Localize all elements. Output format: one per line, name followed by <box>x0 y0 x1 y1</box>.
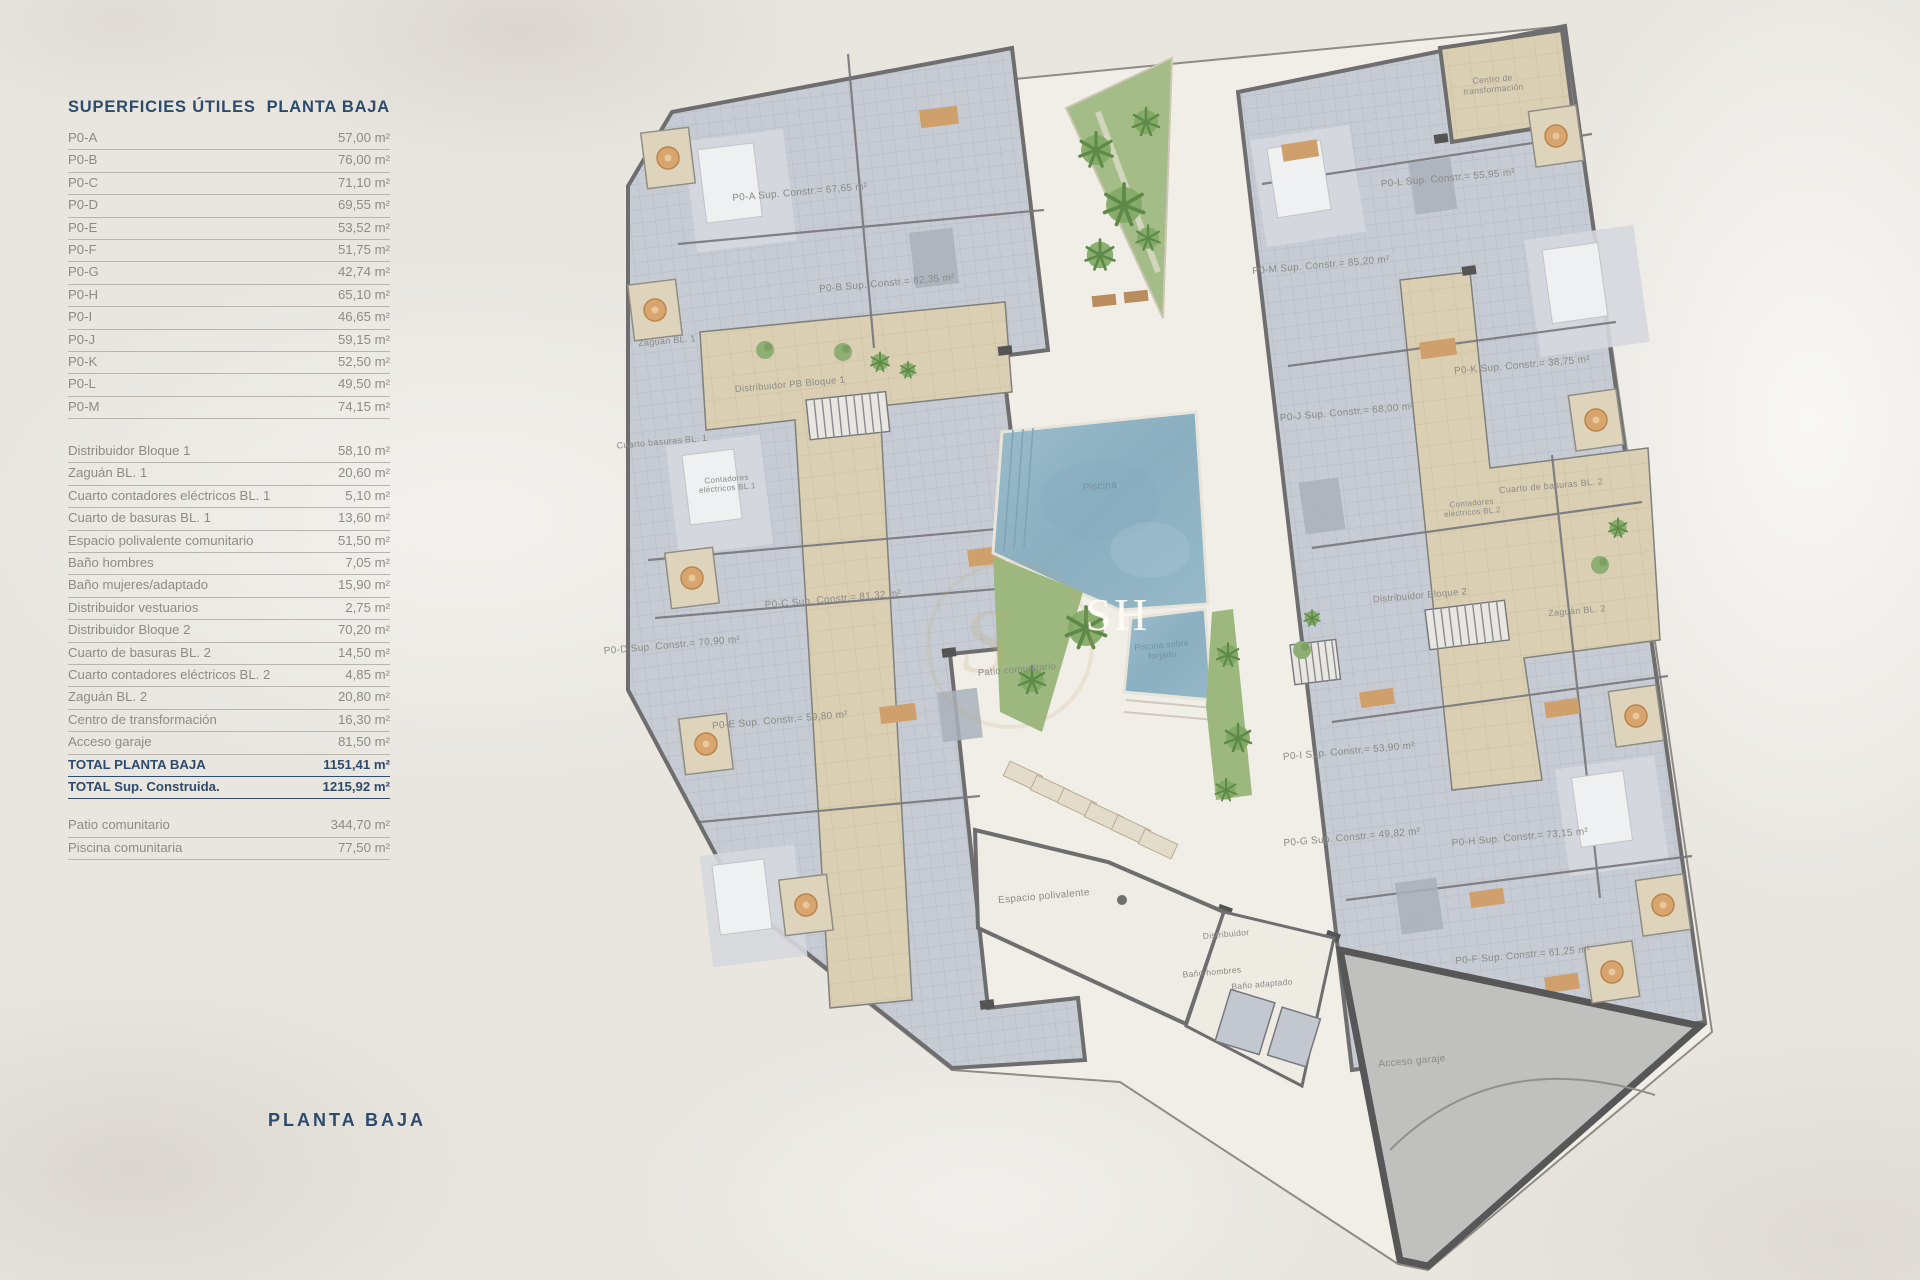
row-label: Cuarto contadores eléctricos BL. 1 <box>68 486 270 506</box>
outdoor-section: Patio comunitario 344,70 m² Piscina comu… <box>68 815 390 860</box>
table-row: P0-K 52,50 m² <box>68 352 390 374</box>
total-row: TOTAL PLANTA BAJA 1151,41 m² <box>68 755 390 777</box>
row-value: 20,60 m² <box>338 463 390 483</box>
row-value: 74,15 m² <box>338 397 390 417</box>
row-label: P0-I <box>68 307 92 327</box>
row-value: 53,52 m² <box>338 218 390 238</box>
row-value: 77,50 m² <box>338 838 390 858</box>
table-row: Cuarto de basuras BL. 2 14,50 m² <box>68 643 390 665</box>
page-title: PLANTA BAJA <box>268 1110 426 1131</box>
row-label: Piscina comunitaria <box>68 838 182 858</box>
table-row: Distribuidor Bloque 2 70,20 m² <box>68 620 390 642</box>
row-value: 69,55 m² <box>338 195 390 215</box>
apartments-section: P0-A 57,00 m² P0-B 76,00 m² P0-C 71,10 m… <box>68 128 390 419</box>
row-value: 14,50 m² <box>338 643 390 663</box>
row-value: 15,90 m² <box>338 575 390 595</box>
row-label: P0-H <box>68 285 98 305</box>
surface-table: SUPERFICIES ÚTILES PLANTA BAJA P0-A 57,0… <box>68 98 390 882</box>
table-row: P0-H 65,10 m² <box>68 285 390 307</box>
row-label: P0-C <box>68 173 98 193</box>
row-label: P0-F <box>68 240 97 260</box>
row-label: Zaguán BL. 1 <box>68 463 147 483</box>
row-value: 49,50 m² <box>338 374 390 394</box>
table-header: SUPERFICIES ÚTILES PLANTA BAJA <box>68 98 390 117</box>
row-label: Distribuidor Bloque 2 <box>68 620 190 640</box>
table-row: Cuarto de basuras BL. 1 13,60 m² <box>68 508 390 530</box>
row-label: P0-L <box>68 374 96 394</box>
table-row: Cuarto contadores eléctricos BL. 2 4,85 … <box>68 665 390 687</box>
table-row: Patio comunitario 344,70 m² <box>68 815 390 837</box>
row-label: P0-G <box>68 262 99 282</box>
row-label: Acceso garaje <box>68 732 152 752</box>
table-row: Baño mujeres/adaptado 15,90 m² <box>68 575 390 597</box>
row-value: 42,74 m² <box>338 262 390 282</box>
row-label: Baño hombres <box>68 553 154 573</box>
row-value: 81,50 m² <box>338 732 390 752</box>
table-row: P0-L 49,50 m² <box>68 374 390 396</box>
row-label: P0-D <box>68 195 98 215</box>
row-value: 20,80 m² <box>338 687 390 707</box>
table-row: Centro de transformación 16,30 m² <box>68 710 390 732</box>
table-row: P0-D 69,55 m² <box>68 195 390 217</box>
row-value: 58,10 m² <box>338 441 390 461</box>
row-value: 13,60 m² <box>338 508 390 528</box>
row-value: 70,20 m² <box>338 620 390 640</box>
row-value: 65,10 m² <box>338 285 390 305</box>
row-value: 5,10 m² <box>345 486 390 506</box>
table-row: Piscina comunitaria 77,50 m² <box>68 838 390 860</box>
row-value: 7,05 m² <box>345 553 390 573</box>
row-label: P0-J <box>68 330 95 350</box>
row-value: 51,50 m² <box>338 531 390 551</box>
table-row: Distribuidor vestuarios 2,75 m² <box>68 598 390 620</box>
row-label: Cuarto de basuras BL. 1 <box>68 508 211 528</box>
row-label: P0-M <box>68 397 100 417</box>
row-value: 76,00 m² <box>338 150 390 170</box>
row-value: 71,10 m² <box>338 173 390 193</box>
watermark-monogram: SH <box>1086 589 1151 640</box>
row-label: Cuarto contadores eléctricos BL. 2 <box>68 665 270 685</box>
row-value: 51,75 m² <box>338 240 390 260</box>
total-row: TOTAL Sup. Construida. 1215,92 m² <box>68 777 390 799</box>
row-label: P0-E <box>68 218 97 238</box>
row-label: Distribuidor vestuarios <box>68 598 198 618</box>
row-value: 344,70 m² <box>331 815 390 835</box>
table-row: Espacio polivalente comunitario 51,50 m² <box>68 531 390 553</box>
total-value: 1215,92 m² <box>323 777 390 797</box>
row-value: 59,15 m² <box>338 330 390 350</box>
table-row: Zaguán BL. 2 20,80 m² <box>68 687 390 709</box>
row-value: 16,30 m² <box>338 710 390 730</box>
table-row: Baño hombres 7,05 m² <box>68 553 390 575</box>
row-label: P0-B <box>68 150 97 170</box>
table-row: P0-M 74,15 m² <box>68 397 390 419</box>
row-label: Distribuidor Bloque 1 <box>68 441 190 461</box>
row-label: P0-A <box>68 128 97 148</box>
table-row: P0-I 46,65 m² <box>68 307 390 329</box>
table-row: P0-B 76,00 m² <box>68 150 390 172</box>
total-value: 1151,41 m² <box>323 755 390 775</box>
table-row: Cuarto contadores eléctricos BL. 1 5,10 … <box>68 486 390 508</box>
table-row: Distribuidor Bloque 1 58,10 m² <box>68 441 390 463</box>
totals-section: TOTAL PLANTA BAJA 1151,41 m² TOTAL Sup. … <box>68 755 390 800</box>
table-row: Acceso garaje 81,50 m² <box>68 732 390 754</box>
column <box>1117 895 1127 905</box>
watermark-flourish: S <box>962 590 1008 692</box>
table-row: P0-J 59,15 m² <box>68 330 390 352</box>
table-row: P0-A 57,00 m² <box>68 128 390 150</box>
row-label: Cuarto de basuras BL. 2 <box>68 643 211 663</box>
row-label: Zaguán BL. 2 <box>68 687 147 707</box>
page: { "page": { "background": "#e9e6e0", "ti… <box>0 0 1920 1280</box>
total-label: TOTAL Sup. Construida. <box>68 777 220 797</box>
total-label: TOTAL PLANTA BAJA <box>68 755 206 775</box>
table-row: P0-G 42,74 m² <box>68 262 390 284</box>
row-label: Centro de transformación <box>68 710 217 730</box>
table-row: P0-F 51,75 m² <box>68 240 390 262</box>
row-label: P0-K <box>68 352 97 372</box>
row-label: Patio comunitario <box>68 815 170 835</box>
row-value: 46,65 m² <box>338 307 390 327</box>
table-title: SUPERFICIES ÚTILES <box>68 98 256 117</box>
row-value: 57,00 m² <box>338 128 390 148</box>
row-label: Espacio polivalente comunitario <box>68 531 253 551</box>
table-row: P0-C 71,10 m² <box>68 173 390 195</box>
common-areas-section: Distribuidor Bloque 1 58,10 m² Zaguán BL… <box>68 441 390 754</box>
row-label: Baño mujeres/adaptado <box>68 575 208 595</box>
table-subtitle: PLANTA BAJA <box>267 98 390 117</box>
row-value: 4,85 m² <box>345 665 390 685</box>
row-value: 2,75 m² <box>345 598 390 618</box>
table-row: P0-E 53,52 m² <box>68 218 390 240</box>
table-row: Zaguán BL. 1 20,60 m² <box>68 463 390 485</box>
row-value: 52,50 m² <box>338 352 390 372</box>
